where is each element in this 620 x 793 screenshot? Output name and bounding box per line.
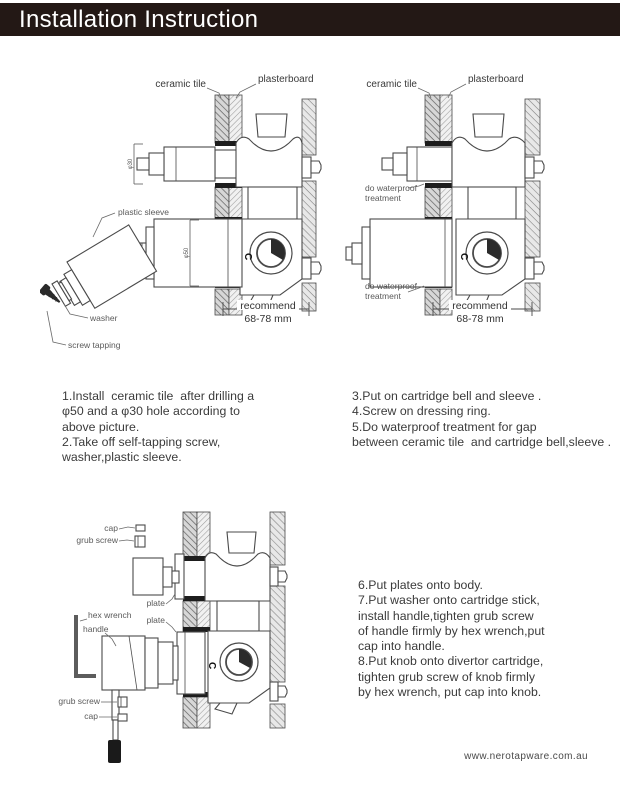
instruction-line: between ceramic tile and cartridge bell,…	[352, 435, 618, 450]
recommend-label: recommend	[452, 300, 508, 312]
grub-screw-lower-label: grub screw	[58, 696, 100, 706]
page-title: Installation Instruction	[19, 3, 258, 36]
instruction-line: 8.Put knob onto divertor cartridge,	[358, 654, 610, 669]
instruction-line: cap into handle.	[358, 639, 610, 654]
ceramic-tile-label: ceramic tile	[366, 79, 417, 90]
grub-screw-upper-leader	[119, 540, 134, 541]
waterproof-upper-label-line2: treatment	[365, 193, 402, 203]
cartridge-stem	[382, 147, 452, 181]
handle-label: handle	[83, 624, 109, 634]
cap-upper-part	[136, 525, 145, 531]
website-url: www.nerotapware.com.au	[464, 751, 588, 762]
plastic-sleeve-label: plastic sleeve	[118, 207, 169, 217]
handle	[102, 636, 178, 690]
instruction-line: of handle firmly by hex wrench,put	[358, 624, 610, 639]
dimension-phi30-label: φ30	[128, 158, 134, 169]
washer-leader	[64, 304, 88, 318]
cold-mark: C	[206, 662, 217, 669]
waterproof-lower-label-line2: treatment	[365, 291, 402, 301]
instruction-line: above picture.	[62, 420, 312, 435]
hex-wrench-label: hex wrench	[88, 610, 132, 620]
instructions-steps-1-2: 1.Install ceramic tile after drilling a …	[62, 389, 312, 465]
plate-lower-label: plate	[147, 615, 166, 625]
plasterboard-label: plasterboard	[258, 74, 314, 85]
plate-lower-leader	[166, 622, 176, 632]
grub-screw-lower-part	[118, 697, 127, 707]
installation-instruction-page: Installation Instruction	[0, 0, 620, 793]
plasterboard-label: plasterboard	[468, 74, 524, 85]
plastic-sleeve-leader	[93, 213, 115, 237]
cold-mark: C	[458, 253, 469, 260]
hex-wrench-leader	[80, 619, 87, 621]
diagram-step3-handle-assembly: C	[55, 485, 355, 775]
screw-tapping-leader	[47, 311, 66, 345]
instruction-line: install handle,tighten grub screw	[358, 609, 610, 624]
instruction-line: 3.Put on cartridge bell and sleeve .	[352, 389, 618, 404]
diverter-dial	[250, 232, 292, 274]
instruction-line: by hex wrench, put cap into knob.	[358, 685, 610, 700]
diverter-knob	[133, 558, 179, 595]
instruction-line: 6.Put plates onto body.	[358, 578, 610, 593]
cartridge-bell-sleeve	[346, 219, 452, 287]
diagram-step1-drill-and-remove: φ30 C	[40, 57, 335, 382]
instruction-line: washer,plastic sleeve.	[62, 450, 312, 465]
waterproof-lower-label-line1: do waterproof	[365, 281, 418, 291]
cap-lower-label: cap	[84, 711, 98, 721]
ceramic-tile-label: ceramic tile	[155, 79, 206, 90]
instruction-line: 7.Put washer onto cartridge stick,	[358, 593, 610, 608]
instruction-line: 4.Screw on dressing ring.	[352, 404, 618, 419]
instructions-steps-3-5: 3.Put on cartridge bell and sleeve . 4.S…	[352, 389, 618, 450]
diverter-dial	[466, 232, 508, 274]
grub-screw-upper-part	[135, 536, 145, 547]
instruction-line: tighten grub screw of knob firmly	[358, 670, 610, 685]
title-bar: Installation Instruction	[0, 3, 620, 36]
plate-upper-label: plate	[147, 598, 166, 608]
recommend-range-label: 68-78 mm	[456, 313, 504, 325]
cap-lower-part	[118, 714, 127, 721]
plate-lower	[177, 632, 205, 694]
cap-upper-label: cap	[104, 523, 118, 533]
instruction-line: φ50 and a φ30 hole according to	[62, 404, 312, 419]
washer-label: washer	[89, 313, 118, 323]
dimension-phi50-label: φ50	[184, 247, 190, 258]
recommend-range-label: 68-78 mm	[244, 313, 292, 325]
diagram-step2-waterproof: C ceramic tile plasterboard do waterproo…	[345, 57, 615, 382]
recommend-label: recommend	[240, 300, 296, 312]
grub-screw-upper-label: grub screw	[76, 535, 118, 545]
cold-mark: C	[242, 253, 253, 260]
diverter-dial	[220, 643, 258, 681]
plate-upper-leader	[166, 594, 175, 604]
cap-upper-leader	[119, 527, 135, 529]
instruction-line: 5.Do waterproof treatment for gap	[352, 420, 618, 435]
hex-wrench-grip	[108, 740, 121, 763]
cartridge-stem	[137, 147, 242, 181]
instruction-line: 1.Install ceramic tile after drilling a	[62, 389, 312, 404]
screw-tapping-label: screw tapping	[68, 340, 121, 350]
instruction-line: 2.Take off self-tapping screw,	[62, 435, 312, 450]
instructions-steps-6-8: 6.Put plates onto body. 7.Put washer ont…	[358, 578, 610, 700]
